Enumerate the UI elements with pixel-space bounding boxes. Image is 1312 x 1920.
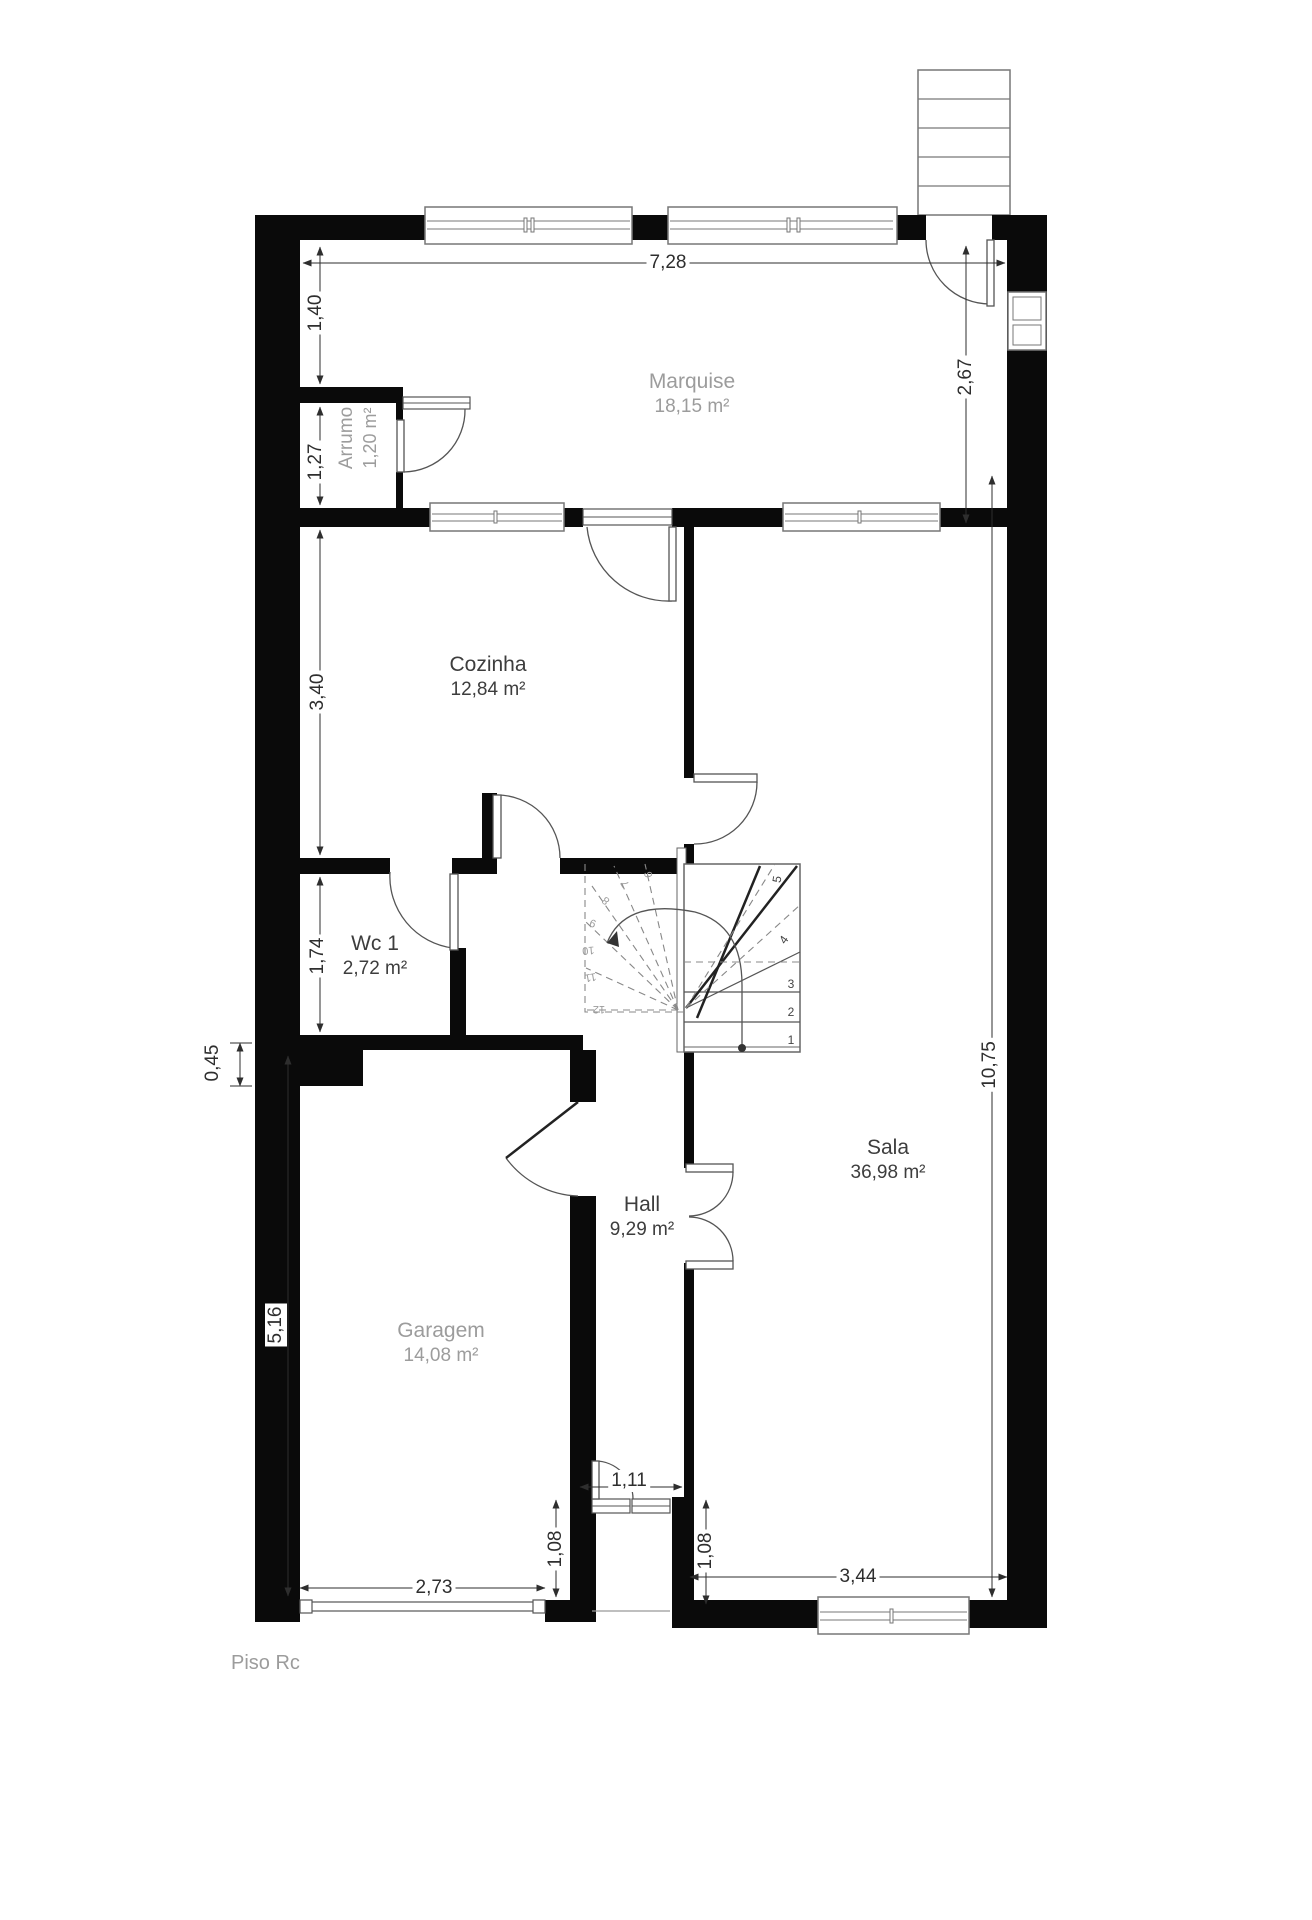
room-name: Marquise xyxy=(649,369,735,395)
door-marquise-cozinha xyxy=(583,509,676,601)
dimension-label: 3,40 xyxy=(307,671,329,714)
room-area: 36,98 m² xyxy=(851,1161,926,1185)
door-arrumo xyxy=(397,397,470,472)
room-label-hall: Hall 9,29 m² xyxy=(610,1192,674,1242)
room-name: Sala xyxy=(851,1135,926,1161)
room-area: 1,20 m² xyxy=(359,407,382,469)
door-garagem xyxy=(506,1102,578,1196)
dimension-label: 2,67 xyxy=(955,356,977,399)
dimension-label: 10,75 xyxy=(979,1038,1001,1092)
doors xyxy=(300,240,994,1613)
room-name: Garagem xyxy=(397,1318,485,1344)
dimension-label: 1,08 xyxy=(695,1530,717,1573)
room-area: 14,08 m² xyxy=(397,1344,485,1368)
dimension-label: 1,40 xyxy=(305,292,327,335)
dimension-label: 7,28 xyxy=(647,252,690,274)
stair-number: 12 xyxy=(593,1003,605,1015)
dimension-label: 1,08 xyxy=(545,1528,567,1571)
window-right-wall xyxy=(1008,292,1046,350)
room-label-marquise: Marquise 18,15 m² xyxy=(649,369,735,419)
room-label-arrumo: Arrumo 1,20 m² xyxy=(335,407,381,469)
entry-door-top xyxy=(926,240,994,306)
room-label-cozinha: Cozinha 12,84 m² xyxy=(449,652,526,702)
stair-number: 7 xyxy=(619,878,632,889)
floorplan-drawing: 1 2 3 4 5 6 7 8 9 10 11 12 xyxy=(0,0,1312,1920)
stair-number: 9 xyxy=(588,916,598,929)
room-area: 9,29 m² xyxy=(610,1218,674,1242)
floor-label: Piso Rc xyxy=(231,1652,300,1675)
stair-number: 1 xyxy=(788,1033,795,1047)
stair-number: 11 xyxy=(584,970,597,984)
stair-number: 3 xyxy=(788,977,795,991)
room-area: 18,15 m² xyxy=(649,395,735,419)
window-top-left xyxy=(425,207,632,244)
room-area: 12,84 m² xyxy=(449,678,526,702)
dimension-label: 0,45 xyxy=(202,1042,224,1085)
staircase: 1 2 3 4 5 6 7 8 9 10 11 12 xyxy=(582,848,800,1052)
exterior-stairs xyxy=(918,70,1010,215)
room-name: Hall xyxy=(610,1192,674,1218)
window-cozinha xyxy=(430,503,564,531)
room-name: Arrumo xyxy=(335,407,359,469)
dimension-label: 1,11 xyxy=(608,1470,650,1492)
garage-door xyxy=(300,1600,545,1613)
dimension-label: 1,74 xyxy=(307,935,329,978)
stair-number: 2 xyxy=(788,1005,795,1019)
dimension-label: 1,27 xyxy=(305,441,327,484)
room-name: Wc 1 xyxy=(343,931,407,957)
floorplan-page: 1 2 3 4 5 6 7 8 9 10 11 12 xyxy=(0,0,1312,1920)
double-door-hall-sala xyxy=(686,1164,733,1269)
stair-number: 10 xyxy=(582,943,595,956)
room-area: 2,72 m² xyxy=(343,957,407,981)
door-cozinha-sala xyxy=(694,774,757,844)
room-label-garagem: Garagem 14,08 m² xyxy=(397,1318,485,1368)
dimension-label: 2,73 xyxy=(413,1577,456,1599)
window-sala-top xyxy=(783,503,940,531)
room-label-wc1: Wc 1 2,72 m² xyxy=(343,931,407,981)
dimension-label: 5,16 xyxy=(265,1304,287,1347)
window-top-right xyxy=(668,207,897,244)
room-name: Cozinha xyxy=(449,652,526,678)
dimension-label: 3,44 xyxy=(837,1566,880,1588)
room-label-sala: Sala 36,98 m² xyxy=(851,1135,926,1185)
window-sala-bottom xyxy=(818,1597,969,1634)
door-cozinha-hall xyxy=(493,795,560,858)
